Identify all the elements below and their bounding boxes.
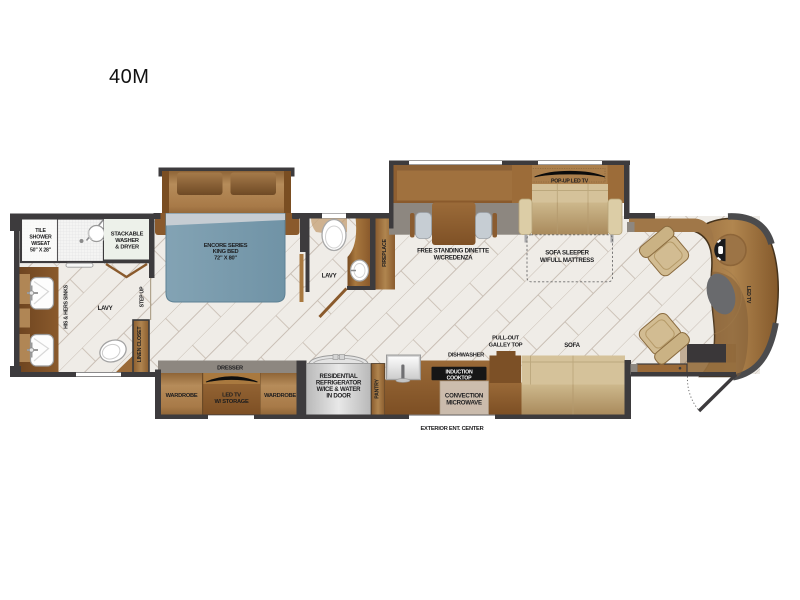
- svg-text:WARDROBE: WARDROBE: [166, 393, 198, 399]
- svg-text:LINEN CLOSET: LINEN CLOSET: [137, 326, 143, 363]
- svg-text:WARDROBE: WARDROBE: [264, 393, 296, 399]
- svg-text:PANTRY: PANTRY: [374, 378, 380, 398]
- svg-text:KING BED: KING BED: [213, 249, 239, 255]
- svg-text:WASHER: WASHER: [115, 238, 139, 244]
- svg-text:POP-UP LED TV: POP-UP LED TV: [551, 179, 589, 185]
- svg-text:FIREPLACE: FIREPLACE: [382, 238, 388, 266]
- svg-text:LAVY: LAVY: [322, 273, 337, 280]
- svg-text:MICROWAVE: MICROWAVE: [446, 400, 482, 407]
- svg-text:STACKABLE: STACKABLE: [111, 232, 144, 238]
- svg-text:FREE STANDING DINETTE: FREE STANDING DINETTE: [417, 248, 489, 255]
- svg-text:50" X 28": 50" X 28": [30, 248, 52, 254]
- svg-text:SHOWER: SHOWER: [29, 235, 52, 241]
- svg-text:IN DOOR: IN DOOR: [326, 393, 351, 400]
- svg-text:LED TV: LED TV: [222, 393, 241, 399]
- svg-text:LED TV: LED TV: [745, 286, 751, 304]
- svg-text:40M: 40M: [109, 66, 149, 88]
- svg-text:LAVY: LAVY: [98, 305, 113, 312]
- svg-text:PULL-OUT: PULL-OUT: [492, 336, 520, 342]
- svg-text:GALLEY TOP: GALLEY TOP: [489, 343, 523, 349]
- svg-text:W/ STORAGE: W/ STORAGE: [214, 399, 249, 405]
- svg-text:DRESSER: DRESSER: [217, 366, 243, 372]
- svg-text:& DRYER: & DRYER: [115, 245, 139, 251]
- svg-text:W/FULL MATTRESS: W/FULL MATTRESS: [540, 257, 594, 264]
- svg-text:W/CREDENZA: W/CREDENZA: [434, 255, 474, 262]
- svg-text:HIS & HERS SINKS: HIS & HERS SINKS: [64, 284, 70, 329]
- svg-text:EXTERIOR ENT. CENTER: EXTERIOR ENT. CENTER: [421, 426, 484, 432]
- svg-text:SOFA: SOFA: [564, 342, 580, 349]
- svg-text:W/SEAT: W/SEAT: [31, 241, 51, 247]
- svg-text:72" X 80": 72" X 80": [214, 256, 237, 262]
- svg-text:TILE: TILE: [35, 228, 46, 234]
- svg-text:CONVECTION: CONVECTION: [445, 393, 483, 400]
- svg-text:INDUCTION: INDUCTION: [445, 369, 472, 375]
- svg-text:DISHWASHER: DISHWASHER: [448, 353, 484, 359]
- svg-text:SOFA SLEEPER: SOFA SLEEPER: [545, 250, 589, 257]
- svg-text:STEP UP: STEP UP: [140, 286, 146, 307]
